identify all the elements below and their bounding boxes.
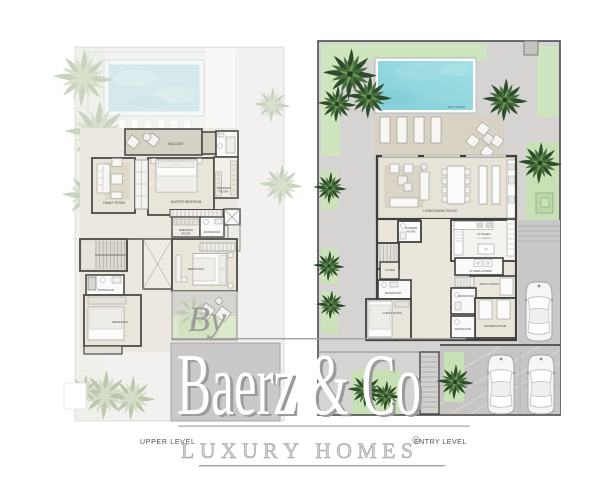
svg-text:MASTER BEDROOM: MASTER BEDROOM [171, 200, 202, 204]
svg-text:STORE/LAUNDRY: STORE/LAUNDRY [469, 269, 493, 273]
svg-text:BATHROOM: BATHROOM [455, 327, 472, 331]
svg-text:BALCONY: BALCONY [168, 142, 184, 146]
svg-text:BATHROOM: BATHROOM [385, 291, 402, 295]
svg-text:BATHROOM: BATHROOM [204, 230, 221, 234]
svg-text:GUEST ROOM: GUEST ROOM [382, 311, 402, 315]
svg-text:BATHROOM: BATHROOM [98, 288, 115, 292]
svg-text:ROOM: ROOM [220, 190, 229, 194]
svg-text:KITCHEN: KITCHEN [477, 232, 490, 236]
svg-text:ROOM: ROOM [407, 229, 416, 233]
svg-text:ROOM: ROOM [182, 231, 191, 235]
svg-text:BEDROOM: BEDROOM [112, 320, 128, 324]
svg-text:Baerz & Co: Baerz & Co [177, 337, 421, 434]
svg-text:DRIVER'S ROOM: DRIVER'S ROOM [484, 324, 507, 328]
svg-text:FAMILY ROOM: FAMILY ROOM [103, 201, 125, 205]
svg-text:BATHROOM: BATHROOM [458, 294, 475, 298]
svg-text:LIVING/DINING ROOM: LIVING/DINING ROOM [423, 209, 457, 213]
svg-text:SALT WATER: SALT WATER [448, 105, 465, 109]
svg-text:ENTRY LEVEL: ENTRY LEVEL [414, 439, 467, 446]
svg-text:STORE: STORE [385, 268, 395, 272]
svg-text:By: By [188, 299, 226, 339]
svg-text:BEDROOM: BEDROOM [188, 267, 204, 271]
svg-text:1+1 DRAWERS: 1+1 DRAWERS [476, 237, 492, 240]
svg-text:MAID'S ROOM: MAID'S ROOM [480, 282, 500, 286]
svg-text:L U X U R Y H O M E S: L U X U R Y H O M E S [181, 438, 413, 463]
